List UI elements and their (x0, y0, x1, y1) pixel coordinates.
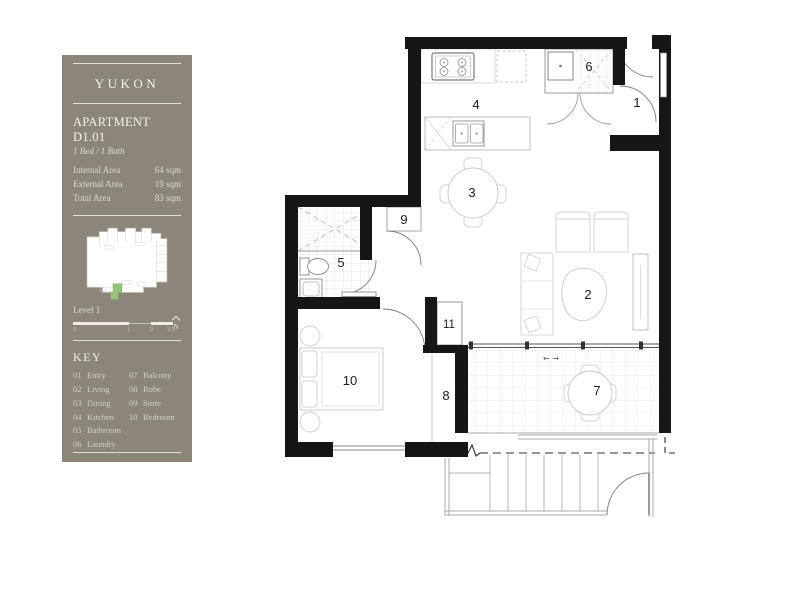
area-value: 83 sqm (155, 192, 181, 206)
sliding-door-arrows: ← → (543, 354, 559, 363)
divider (73, 452, 181, 453)
apartment-configuration: 1 Bed / 1 Bath (73, 146, 181, 156)
room-label-living: 2 (584, 287, 591, 302)
floor-plan: ← → (275, 25, 695, 525)
area-value: 19 sqm (155, 178, 181, 192)
bathroom-door-leaf (342, 292, 376, 297)
entry-window (661, 53, 667, 97)
level-label: Level 1 (73, 305, 181, 315)
building-name: YUKON (62, 64, 192, 103)
scale-tick: 0 (73, 327, 76, 333)
divider (73, 103, 181, 104)
room-label-balcony: 7 (593, 383, 600, 398)
key-title: KEY (73, 350, 181, 365)
key-item: 07Balcony (129, 369, 175, 383)
room-label-11: 11 (443, 319, 455, 331)
key-item: 02Living (73, 383, 121, 397)
key-item: 01Entry (73, 369, 121, 383)
divider (73, 215, 181, 216)
scale-tick: 1 (127, 327, 130, 333)
info-panel: YUKON APARTMENT D1.01 1 Bed / 1 Bath Int… (62, 55, 192, 462)
toilet-bowl (308, 259, 329, 275)
area-row-external: External Area 19 sqm (73, 178, 181, 192)
sink (453, 121, 484, 146)
bedroom (300, 309, 425, 432)
scale-bar: 0 1 2 3.5 N (73, 319, 181, 334)
store-door-arc (387, 231, 421, 265)
room-label-bedroom: 10 (343, 373, 357, 388)
room-label-dining: 3 (468, 185, 475, 200)
fridge-space (497, 51, 526, 82)
room-label-laundry: 6 (585, 59, 592, 74)
scale-segment (151, 322, 173, 325)
key-item: 10Bedroom (129, 411, 175, 425)
room-label-robe: 8 (442, 388, 449, 403)
area-label: Internal Area (73, 164, 120, 178)
key-item: 03Dining (73, 397, 121, 411)
room-label-store: 9 (400, 212, 407, 227)
living-room (521, 212, 648, 335)
stairs (445, 435, 677, 517)
scale-segment (129, 323, 151, 324)
area-value: 64 sqm (155, 164, 181, 178)
stair-treads (449, 455, 598, 511)
gate-door-arc (607, 473, 649, 515)
room-label-kitchen: 4 (472, 97, 479, 112)
bedside-table (300, 326, 320, 346)
balcony-table (568, 371, 612, 415)
laundry-door-arc (580, 93, 611, 124)
area-label: External Area (73, 178, 123, 192)
key-item: 09Store (129, 397, 175, 411)
bedside-table (300, 412, 320, 432)
area-label: Total Area (73, 192, 111, 206)
pillow (302, 351, 317, 377)
key-item: 05Bathroom (73, 424, 121, 438)
area-row-internal: Internal Area 64 sqm (73, 164, 181, 178)
key-legend: 01Entry 02Living 03Dining 04Kitchen 05Ba… (73, 369, 181, 452)
sofa-seat (556, 219, 590, 252)
scale-segment (73, 322, 129, 325)
key-column-2: 07Balcony 08Robe 09Store 10Bedroom (129, 369, 175, 452)
key-item: 04Kitchen (73, 411, 121, 425)
divider (73, 340, 181, 341)
pillow (302, 381, 317, 407)
floor-plan-drawing: ← → (275, 25, 695, 525)
room-label-bathroom: 5 (337, 255, 344, 270)
scale-tick: 2 (150, 327, 153, 333)
key-item: 08Robe (129, 383, 175, 397)
area-row-total: Total Area 83 sqm (73, 192, 181, 206)
cooktop (432, 53, 474, 80)
apartment-title: APARTMENT D1.01 (73, 115, 181, 145)
room-label-entry: 1 (633, 95, 640, 110)
north-arrow: N (171, 317, 181, 331)
north-label: N (171, 324, 181, 331)
key-item: 06Laundry (73, 438, 121, 452)
bedroom-door-arc (383, 309, 425, 351)
site-map (73, 223, 181, 303)
key-column-1: 01Entry 02Living 03Dining 04Kitchen 05Ba… (73, 369, 121, 452)
sofa-seat (594, 219, 628, 252)
laundry-door-arc (547, 93, 578, 124)
